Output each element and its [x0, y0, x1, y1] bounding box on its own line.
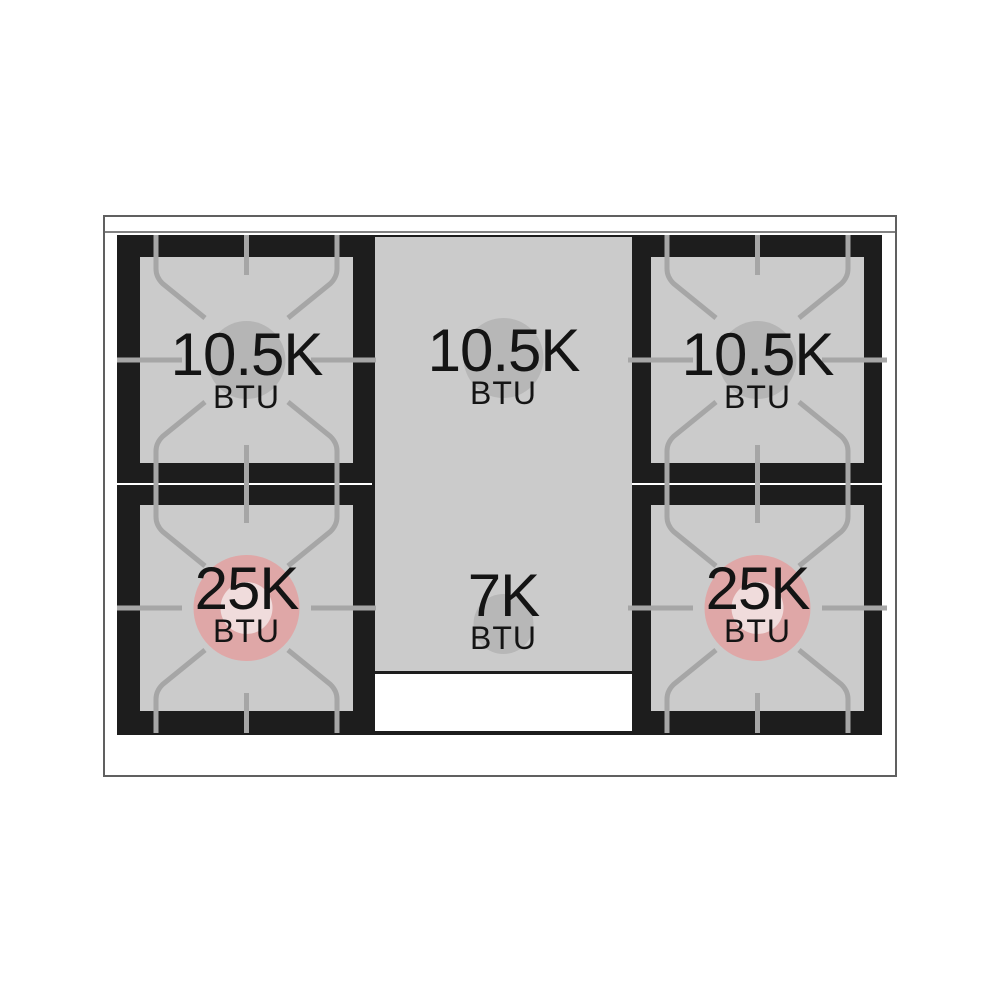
burner-btu-value: 25K — [706, 559, 810, 619]
diagram-canvas: 10.5K BTU 10.5K BTU 10.5K BTU 25K BTU 7K… — [0, 0, 1000, 1000]
burner-btu-value: 10.5K — [682, 325, 834, 385]
oven-vent-panel — [375, 674, 632, 731]
range-outline: 10.5K BTU 10.5K BTU 10.5K BTU 25K BTU 7K… — [103, 215, 897, 777]
burner-label-back-right: 10.5K BTU — [682, 325, 834, 414]
burner-btu-value: 10.5K — [428, 321, 580, 381]
burner-btu-unit: BTU — [468, 622, 539, 655]
burner-btu-value: 10.5K — [171, 325, 323, 385]
burner-label-front-left: 25K BTU — [195, 559, 299, 648]
burner-label-front-right: 25K BTU — [706, 559, 810, 648]
burner-label-back-center: 10.5K BTU — [428, 321, 580, 410]
burner-btu-value: 7K — [468, 566, 539, 626]
back-trim-line — [105, 231, 895, 233]
burner-btu-value: 25K — [195, 559, 299, 619]
burner-label-front-center: 7K BTU — [468, 566, 539, 655]
burner-label-back-left: 10.5K BTU — [171, 325, 323, 414]
cooktop-surface: 10.5K BTU 10.5K BTU 10.5K BTU 25K BTU 7K… — [117, 235, 882, 735]
